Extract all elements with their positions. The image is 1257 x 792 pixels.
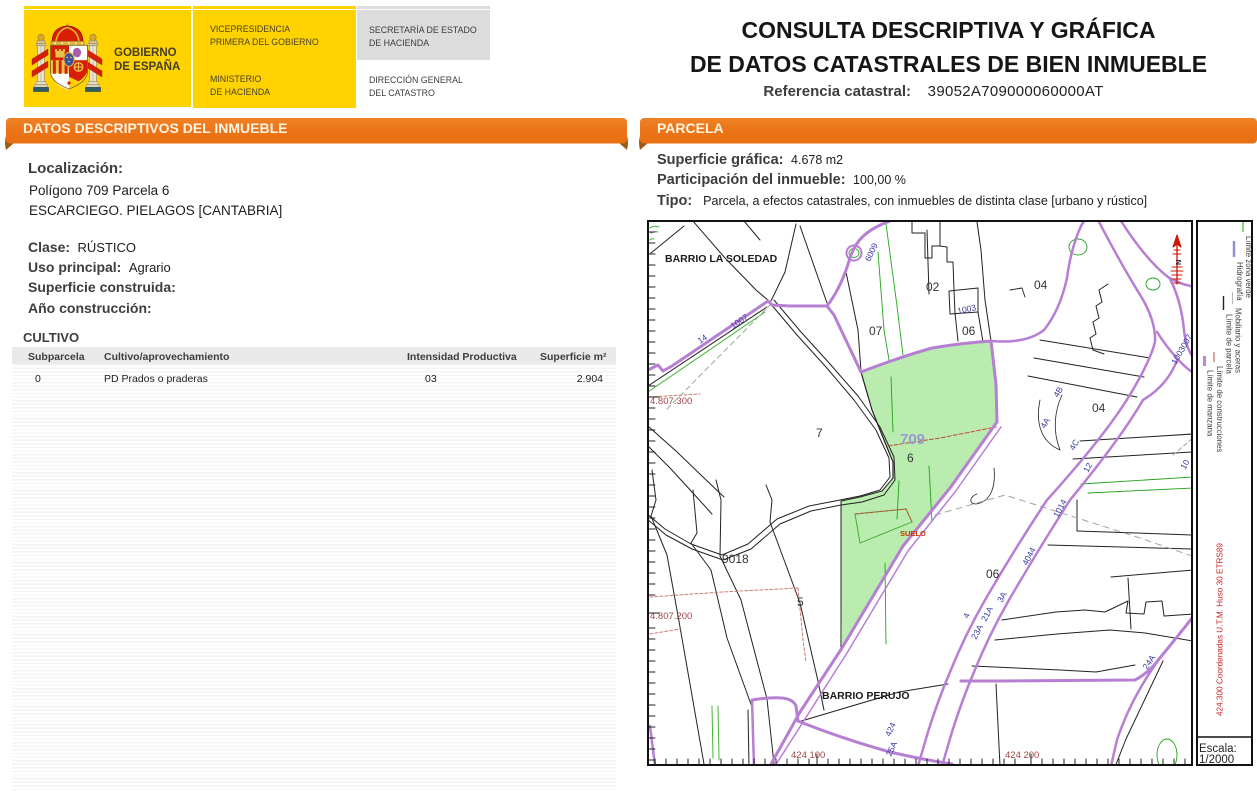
svg-text:04: 04 <box>1034 278 1048 292</box>
svg-text:424 200: 424 200 <box>1005 750 1039 761</box>
svg-text:Mobiliario y aceras: Mobiliario y aceras <box>1234 308 1243 373</box>
svg-text:1003007: 1003007 <box>1169 332 1194 366</box>
svg-text:04: 04 <box>1092 401 1106 415</box>
svg-text:Límite de parcela: Límite de parcela <box>1225 314 1234 374</box>
svg-text:7: 7 <box>816 426 823 440</box>
svg-text:4B: 4B <box>1051 385 1065 399</box>
svg-text:SUELO: SUELO <box>900 529 926 538</box>
svg-text:6009: 6009 <box>863 241 880 263</box>
svg-text:02: 02 <box>926 280 940 294</box>
svg-text:24A: 24A <box>1140 653 1157 671</box>
svg-text:424: 424 <box>883 721 898 738</box>
svg-text:1/2000: 1/2000 <box>1199 754 1234 766</box>
svg-text:4.807.300: 4.807.300 <box>650 396 692 407</box>
svg-text:10: 10 <box>1178 458 1192 471</box>
svg-text:709: 709 <box>900 431 925 448</box>
svg-text:Límite de manzana: Límite de manzana <box>1206 370 1215 437</box>
svg-text:BARRIO PERUJO: BARRIO PERUJO <box>822 690 910 702</box>
svg-text:4C: 4C <box>1067 438 1081 452</box>
svg-text:06: 06 <box>962 324 976 338</box>
svg-text:4: 4 <box>961 611 972 620</box>
svg-text:06: 06 <box>986 567 1000 581</box>
svg-text:07: 07 <box>869 324 883 338</box>
svg-text:5: 5 <box>797 595 804 609</box>
svg-text:424.300 Coordenadas U.T.M. Hus: 424.300 Coordenadas U.T.M. Huso 30 ETRS8… <box>1216 543 1225 716</box>
svg-text:N: N <box>1174 260 1183 265</box>
svg-text:424 100: 424 100 <box>791 750 825 761</box>
svg-text:Límite de construcciones: Límite de construcciones <box>1215 366 1224 452</box>
svg-text:Hidrografía: Hidrografía <box>1235 262 1244 301</box>
svg-text:9018: 9018 <box>722 552 749 566</box>
svg-text:Límite zona verde: Límite zona verde <box>1244 236 1253 298</box>
svg-text:1003: 1003 <box>956 302 977 316</box>
svg-text:BARRIO LA SOLEDAD: BARRIO LA SOLEDAD <box>665 253 778 265</box>
svg-text:6: 6 <box>907 451 914 465</box>
